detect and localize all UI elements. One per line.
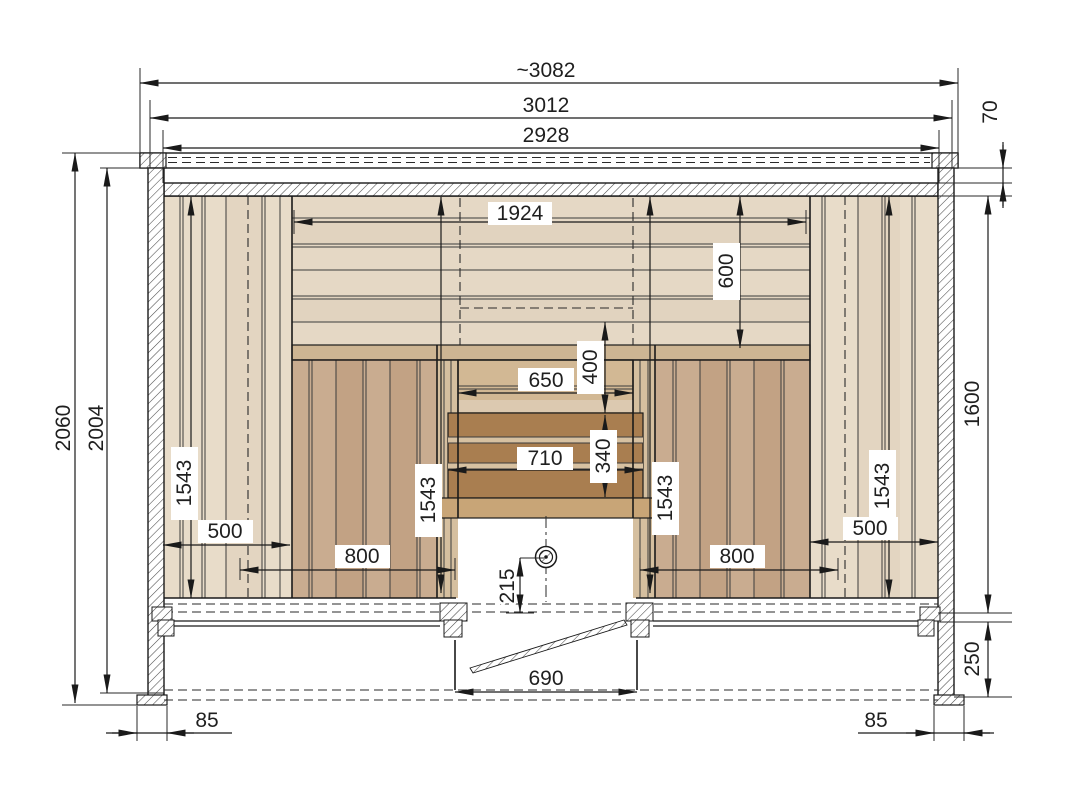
dim-recess-upper-width: 650 <box>528 369 563 392</box>
dim-interior-height: 1600 <box>961 381 984 428</box>
dim-recess-lower-height: 340 <box>592 438 615 473</box>
dim-panel-height-left-inner: 1543 <box>417 477 440 524</box>
dim-recess-upper-height: 400 <box>579 349 602 384</box>
dim-side-width-left: 500 <box>207 520 242 543</box>
dim-recess-lower-width: 710 <box>527 447 562 470</box>
dim-side-width-right: 500 <box>852 517 887 540</box>
dim-overall-width: ~3082 <box>517 59 576 82</box>
dim-total-height: 2060 <box>52 405 75 452</box>
dim-plinth-height: 250 <box>961 641 984 676</box>
dim-door-width: 690 <box>528 667 563 690</box>
dim-roof-gap: 70 <box>979 100 1002 123</box>
dim-outer-width: 3012 <box>523 94 570 117</box>
dim-panel-height-right-outer: 1543 <box>871 463 894 510</box>
ceiling-beam <box>164 183 938 196</box>
dim-inner-width: 2928 <box>523 124 570 147</box>
roof-slab <box>140 153 958 168</box>
dim-sensor-height: 215 <box>496 568 519 603</box>
dim-panel-height-left-outer: 1543 <box>173 460 196 507</box>
dim-backrest-width: 1924 <box>497 202 544 225</box>
dim-wall-height: 2004 <box>85 404 108 451</box>
sauna-elevation-drawing: ~3082 3012 2928 1924 650 710 500 500 800… <box>0 0 1080 800</box>
dim-bench-width-right: 800 <box>719 545 754 568</box>
dim-foot-width-right: 85 <box>864 709 887 732</box>
dim-bench-width-left: 800 <box>344 545 379 568</box>
dim-backrest-height: 600 <box>715 253 738 288</box>
bench-rail <box>292 345 810 360</box>
dim-panel-height-right-inner: 1543 <box>654 475 677 522</box>
dim-foot-width-left: 85 <box>195 709 218 732</box>
